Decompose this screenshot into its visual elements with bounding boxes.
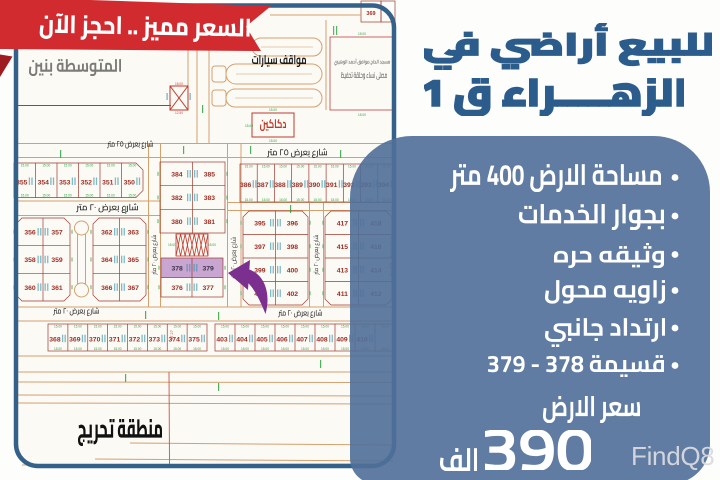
svg-text:15.00: 15.00 bbox=[358, 32, 366, 36]
svg-text:15.00: 15.00 bbox=[331, 198, 339, 202]
svg-text:15.00: 15.00 bbox=[54, 325, 62, 329]
svg-text:15.00: 15.00 bbox=[193, 347, 201, 351]
svg-text:371: 371 bbox=[109, 337, 121, 344]
svg-text:396: 396 bbox=[287, 220, 299, 227]
svg-text:15.00: 15.00 bbox=[107, 194, 115, 198]
svg-text:15.00: 15.00 bbox=[21, 164, 29, 168]
svg-text:15.00: 15.00 bbox=[341, 325, 349, 329]
svg-text:353: 353 bbox=[59, 179, 71, 186]
svg-text:15.00: 15.00 bbox=[262, 165, 270, 169]
svg-text:373: 373 bbox=[149, 337, 161, 344]
svg-text:15.00: 15.00 bbox=[269, 108, 277, 112]
svg-text:374: 374 bbox=[169, 337, 181, 344]
svg-text:360: 360 bbox=[24, 285, 36, 292]
svg-text:15.00: 15.00 bbox=[21, 194, 29, 198]
svg-text:351: 351 bbox=[102, 179, 114, 186]
svg-text:15.00: 15.00 bbox=[85, 194, 93, 198]
svg-text:15.00: 15.00 bbox=[296, 165, 304, 169]
svg-text:15.00: 15.00 bbox=[245, 124, 253, 128]
svg-text:366: 366 bbox=[101, 285, 113, 292]
svg-text:381: 381 bbox=[204, 219, 216, 226]
svg-text:398: 398 bbox=[287, 244, 299, 251]
svg-text:15.00: 15.00 bbox=[133, 347, 141, 351]
svg-text:388: 388 bbox=[274, 182, 286, 189]
svg-text:15.00: 15.00 bbox=[221, 347, 229, 351]
svg-text:358: 358 bbox=[24, 257, 36, 264]
svg-text:15.00: 15.00 bbox=[281, 347, 289, 351]
svg-text:369: 369 bbox=[69, 337, 81, 344]
svg-text:415: 415 bbox=[337, 244, 349, 251]
svg-text:15.00: 15.00 bbox=[54, 347, 62, 351]
svg-text:375: 375 bbox=[188, 337, 200, 344]
svg-text:383: 383 bbox=[204, 195, 216, 202]
svg-text:15.00: 15.00 bbox=[261, 347, 269, 351]
svg-text:15.00: 15.00 bbox=[301, 347, 309, 351]
svg-text:15.00: 15.00 bbox=[301, 325, 309, 329]
svg-text:404: 404 bbox=[236, 337, 248, 344]
svg-text:15.00: 15.00 bbox=[64, 164, 72, 168]
svg-text:15.00: 15.00 bbox=[321, 325, 329, 329]
svg-text:15.00: 15.00 bbox=[94, 347, 102, 351]
svg-text:402: 402 bbox=[287, 291, 299, 298]
svg-text:15.00: 15.00 bbox=[269, 139, 277, 143]
svg-text:15.00: 15.00 bbox=[193, 325, 201, 329]
svg-text:15.00: 15.00 bbox=[74, 347, 82, 351]
svg-text:417: 417 bbox=[337, 220, 349, 227]
svg-text:413: 413 bbox=[337, 267, 349, 274]
svg-text:15.00: 15.00 bbox=[341, 347, 349, 351]
svg-text:387: 387 bbox=[257, 182, 269, 189]
svg-text:15.00: 15.00 bbox=[42, 164, 50, 168]
svg-text:15.00: 15.00 bbox=[94, 325, 102, 329]
svg-text:15.00: 15.00 bbox=[107, 164, 115, 168]
svg-text:408: 408 bbox=[316, 337, 328, 344]
svg-text:15.00: 15.00 bbox=[279, 198, 287, 202]
svg-text:397: 397 bbox=[254, 244, 266, 251]
svg-text:354: 354 bbox=[38, 179, 50, 186]
svg-text:15.00: 15.00 bbox=[85, 164, 93, 168]
svg-text:407: 407 bbox=[296, 337, 308, 344]
svg-text:15.00: 15.00 bbox=[114, 347, 122, 351]
svg-text:365: 365 bbox=[128, 257, 140, 264]
svg-text:15.00: 15.00 bbox=[281, 325, 289, 329]
svg-text:15.00: 15.00 bbox=[133, 325, 141, 329]
svg-text:384: 384 bbox=[171, 171, 183, 178]
svg-text:15.00: 15.00 bbox=[348, 165, 356, 169]
svg-text:15.00: 15.00 bbox=[314, 165, 322, 169]
svg-text:386: 386 bbox=[240, 182, 252, 189]
svg-text:372: 372 bbox=[129, 337, 141, 344]
svg-text:405: 405 bbox=[256, 337, 268, 344]
svg-text:15.00: 15.00 bbox=[261, 325, 269, 329]
svg-text:370: 370 bbox=[89, 337, 101, 344]
svg-text:350: 350 bbox=[124, 179, 136, 186]
svg-text:359: 359 bbox=[51, 257, 63, 264]
svg-text:409: 409 bbox=[336, 337, 348, 344]
svg-text:15.00: 15.00 bbox=[175, 82, 183, 86]
svg-text:15.00: 15.00 bbox=[241, 347, 249, 351]
svg-text:357: 357 bbox=[51, 229, 63, 236]
svg-text:364: 364 bbox=[101, 257, 113, 264]
svg-text:367: 367 bbox=[128, 285, 140, 292]
svg-text:406: 406 bbox=[276, 337, 288, 344]
svg-text:15.00: 15.00 bbox=[74, 325, 82, 329]
svg-text:379: 379 bbox=[202, 265, 214, 272]
svg-text:15.00: 15.00 bbox=[128, 194, 136, 198]
svg-text:15.00: 15.00 bbox=[321, 347, 329, 351]
svg-text:376: 376 bbox=[171, 285, 183, 292]
svg-text:380: 380 bbox=[171, 219, 183, 226]
svg-text:15.00: 15.00 bbox=[173, 347, 181, 351]
svg-text:15.00: 15.00 bbox=[241, 325, 249, 329]
svg-text:15.00: 15.00 bbox=[173, 325, 181, 329]
svg-text:15.00: 15.00 bbox=[245, 198, 253, 202]
svg-text:12.50: 12.50 bbox=[175, 111, 183, 115]
svg-text:411: 411 bbox=[337, 291, 348, 298]
svg-text:15.00: 15.00 bbox=[245, 165, 253, 169]
svg-text:15.00: 15.00 bbox=[331, 165, 339, 169]
svg-text:15.00: 15.00 bbox=[358, 113, 366, 117]
svg-text:389: 389 bbox=[292, 182, 304, 189]
svg-text:395: 395 bbox=[254, 220, 266, 227]
svg-text:15.00: 15.00 bbox=[208, 243, 216, 247]
svg-text:15.00: 15.00 bbox=[296, 198, 304, 202]
svg-text:385: 385 bbox=[204, 171, 216, 178]
svg-text:362: 362 bbox=[101, 229, 113, 236]
svg-text:378: 378 bbox=[171, 265, 183, 272]
svg-text:391: 391 bbox=[326, 182, 338, 189]
svg-text:15.00: 15.00 bbox=[42, 194, 50, 198]
svg-text:15.00: 15.00 bbox=[221, 325, 229, 329]
svg-text:15.00: 15.00 bbox=[153, 325, 161, 329]
svg-text:369: 369 bbox=[366, 11, 375, 17]
svg-text:15.00: 15.00 bbox=[279, 165, 287, 169]
svg-text:382: 382 bbox=[171, 195, 183, 202]
svg-text:363: 363 bbox=[128, 229, 140, 236]
svg-text:361: 361 bbox=[51, 285, 63, 292]
svg-text:15.00: 15.00 bbox=[64, 194, 72, 198]
svg-text:15.00: 15.00 bbox=[153, 347, 161, 351]
svg-text:15.00: 15.00 bbox=[114, 325, 122, 329]
svg-text:15.00: 15.00 bbox=[314, 198, 322, 202]
svg-text:356: 356 bbox=[24, 229, 36, 236]
svg-text:15.00: 15.00 bbox=[262, 198, 270, 202]
svg-text:15.00: 15.00 bbox=[168, 243, 176, 247]
svg-text:352: 352 bbox=[81, 179, 93, 186]
svg-text:400: 400 bbox=[287, 267, 299, 274]
svg-text:403: 403 bbox=[216, 337, 228, 344]
svg-text:377: 377 bbox=[202, 285, 214, 292]
svg-text:368: 368 bbox=[49, 337, 61, 344]
svg-text:15.00: 15.00 bbox=[128, 164, 136, 168]
svg-text:390: 390 bbox=[309, 182, 321, 189]
